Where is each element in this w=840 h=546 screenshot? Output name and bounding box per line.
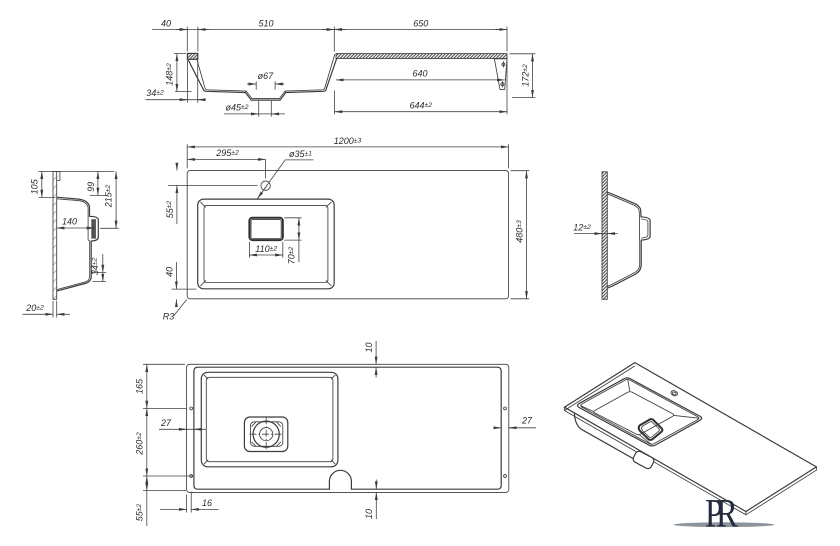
svg-text:27: 27 (160, 418, 172, 428)
svg-text:99: 99 (86, 182, 96, 192)
svg-text:105: 105 (29, 178, 39, 194)
svg-text:510: 510 (258, 19, 273, 29)
svg-text:10: 10 (364, 509, 374, 519)
svg-text:40: 40 (161, 19, 171, 29)
svg-text:650: 650 (413, 19, 428, 29)
svg-text:165: 165 (134, 378, 144, 394)
svg-text:10: 10 (364, 342, 374, 352)
svg-text:16: 16 (202, 498, 212, 508)
svg-text:ø67: ø67 (258, 71, 275, 81)
svg-text:640: 640 (412, 69, 427, 79)
svg-text:R3: R3 (163, 312, 175, 322)
svg-text:27: 27 (521, 416, 533, 426)
svg-text:40: 40 (164, 267, 174, 277)
svg-text:R: R (716, 490, 738, 535)
svg-text:140: 140 (62, 217, 77, 227)
